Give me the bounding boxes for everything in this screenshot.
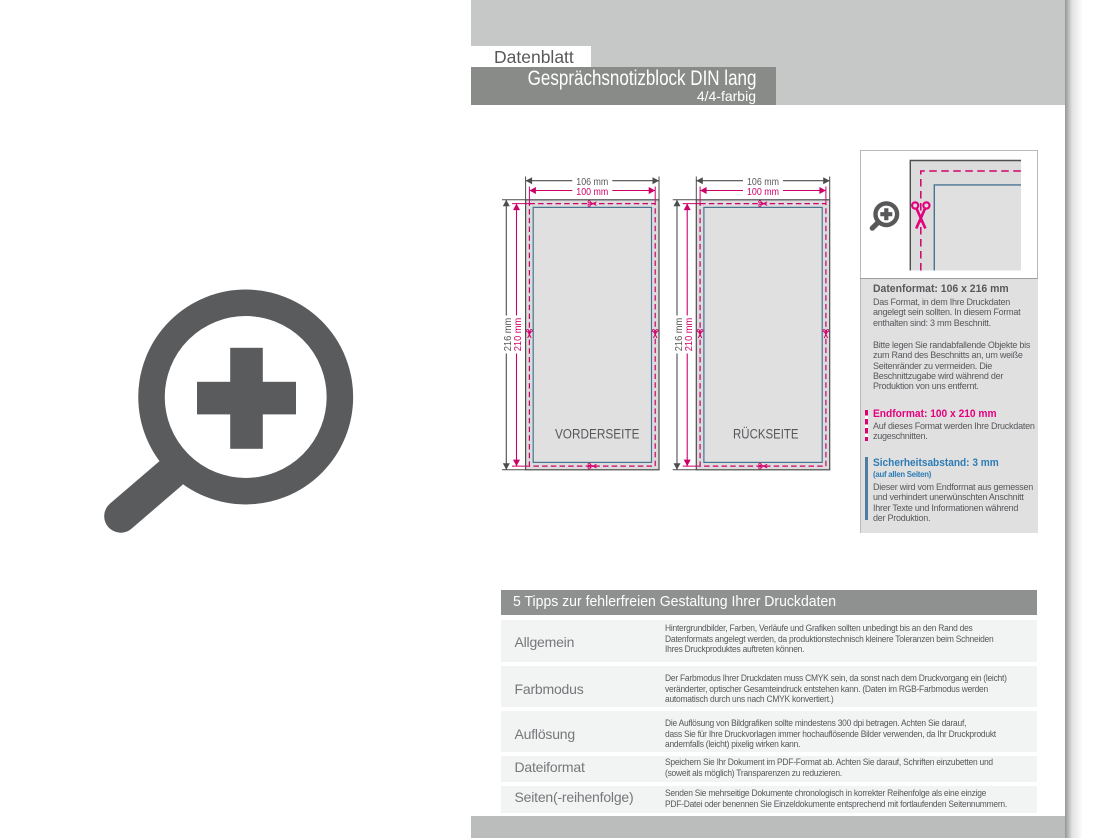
svg-text:VORDERSEITE: VORDERSEITE (555, 427, 640, 443)
svg-text:RÜCKSEITE: RÜCKSEITE (733, 425, 799, 443)
svg-text:210 mm: 210 mm (683, 318, 695, 352)
svg-text:100 mm: 100 mm (576, 186, 608, 198)
svg-text:100 mm: 100 mm (747, 186, 779, 198)
svg-text:210 mm: 210 mm (512, 318, 524, 352)
